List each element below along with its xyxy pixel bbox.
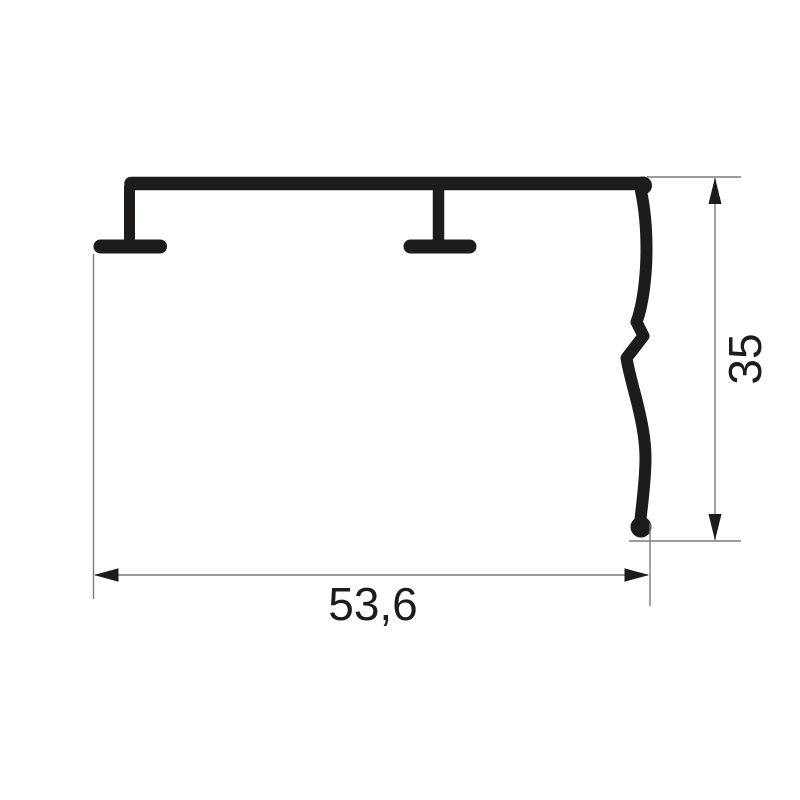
drawing-canvas: 53,6 35 bbox=[0, 0, 800, 800]
width-arrow-right-icon bbox=[625, 568, 650, 581]
dimension-labels: 53,6 35 bbox=[328, 333, 771, 630]
profile-shape bbox=[101, 184, 647, 520]
height-arrow-down-icon bbox=[709, 514, 722, 541]
width-arrow-left-icon bbox=[94, 568, 119, 581]
profile-cross-section-drawing: 53,6 35 bbox=[0, 0, 800, 800]
height-dimension-label: 35 bbox=[719, 333, 771, 384]
profile-right-curved-face bbox=[627, 191, 647, 519]
profile-bottom-end-cap bbox=[631, 517, 652, 538]
profile-top-right-nub bbox=[634, 177, 652, 195]
height-arrow-up-icon bbox=[709, 178, 722, 205]
width-dimension-label: 53,6 bbox=[328, 578, 418, 630]
